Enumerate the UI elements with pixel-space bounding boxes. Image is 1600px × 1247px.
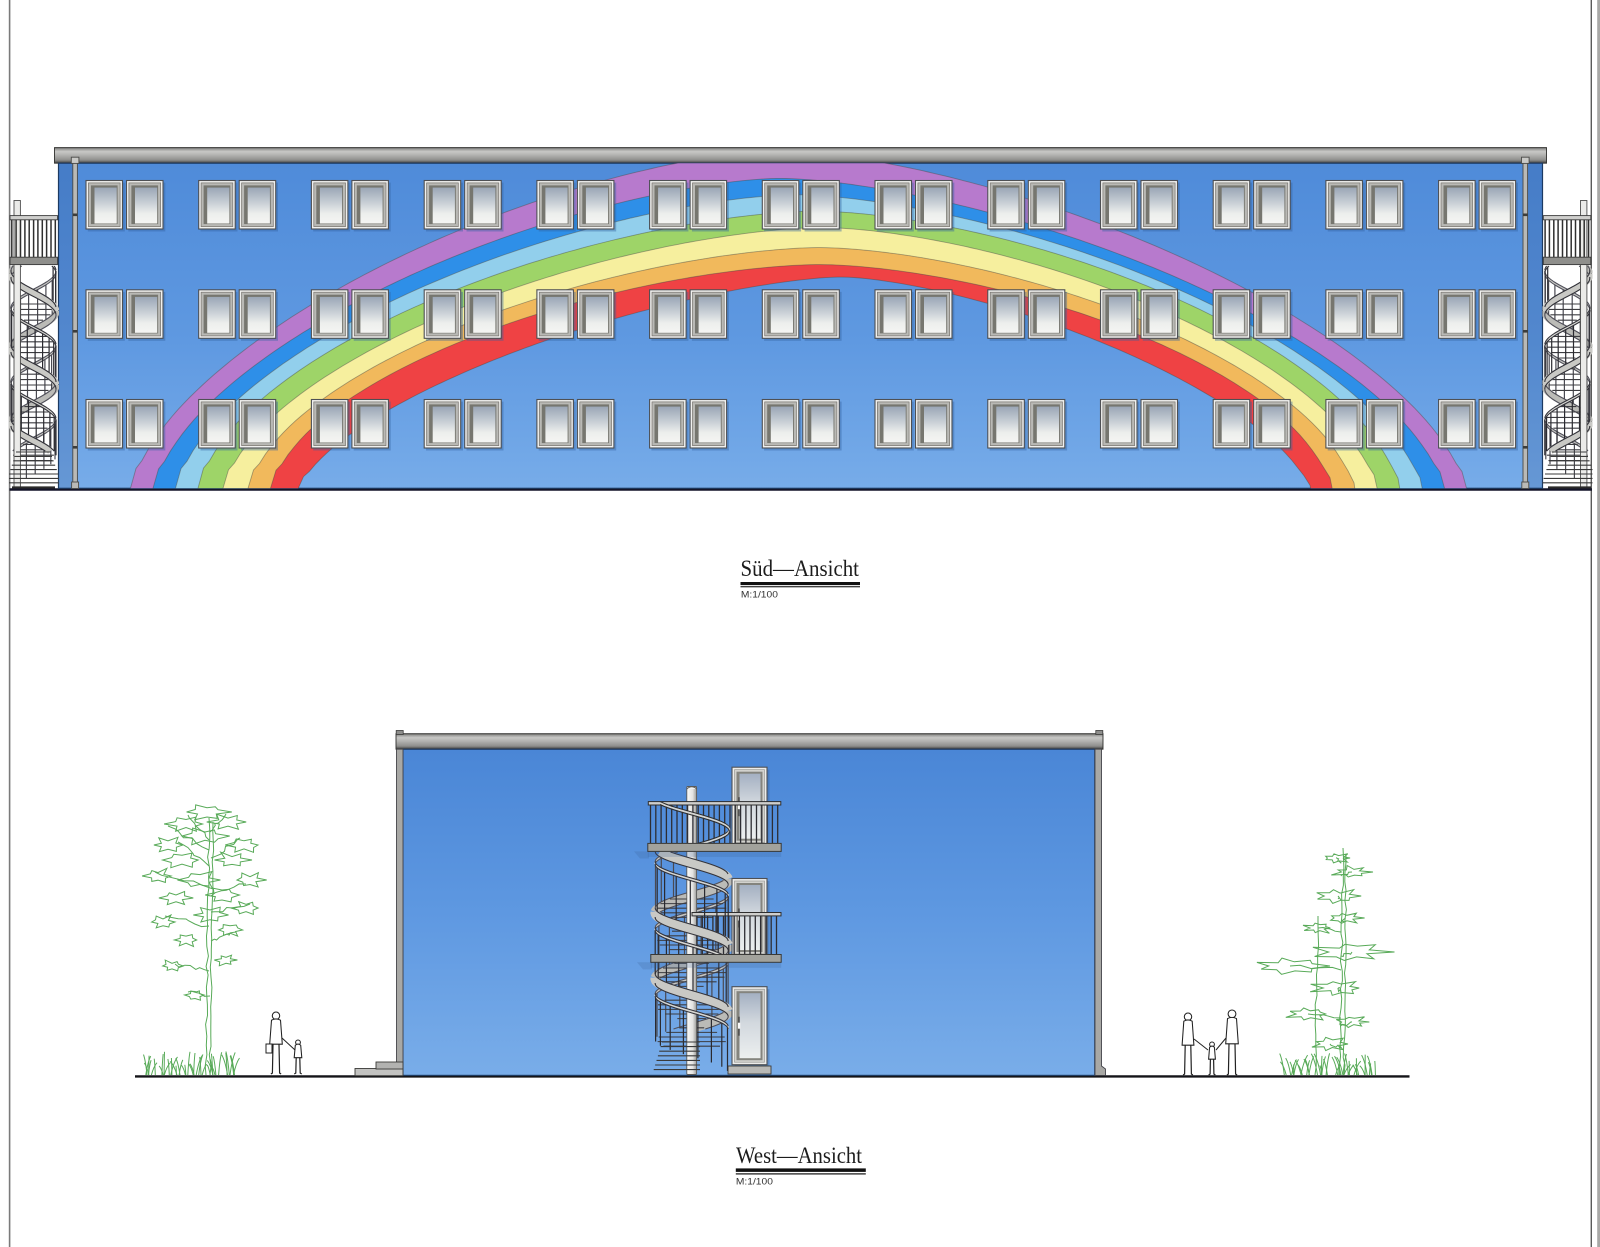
svg-text:M:1/100: M:1/100 [741, 590, 778, 600]
svg-text:Süd—Ansicht: Süd—Ansicht [741, 556, 860, 582]
svg-text:West—Ansicht: West—Ansicht [736, 1143, 862, 1169]
svg-text:M:1/100: M:1/100 [736, 1177, 773, 1187]
